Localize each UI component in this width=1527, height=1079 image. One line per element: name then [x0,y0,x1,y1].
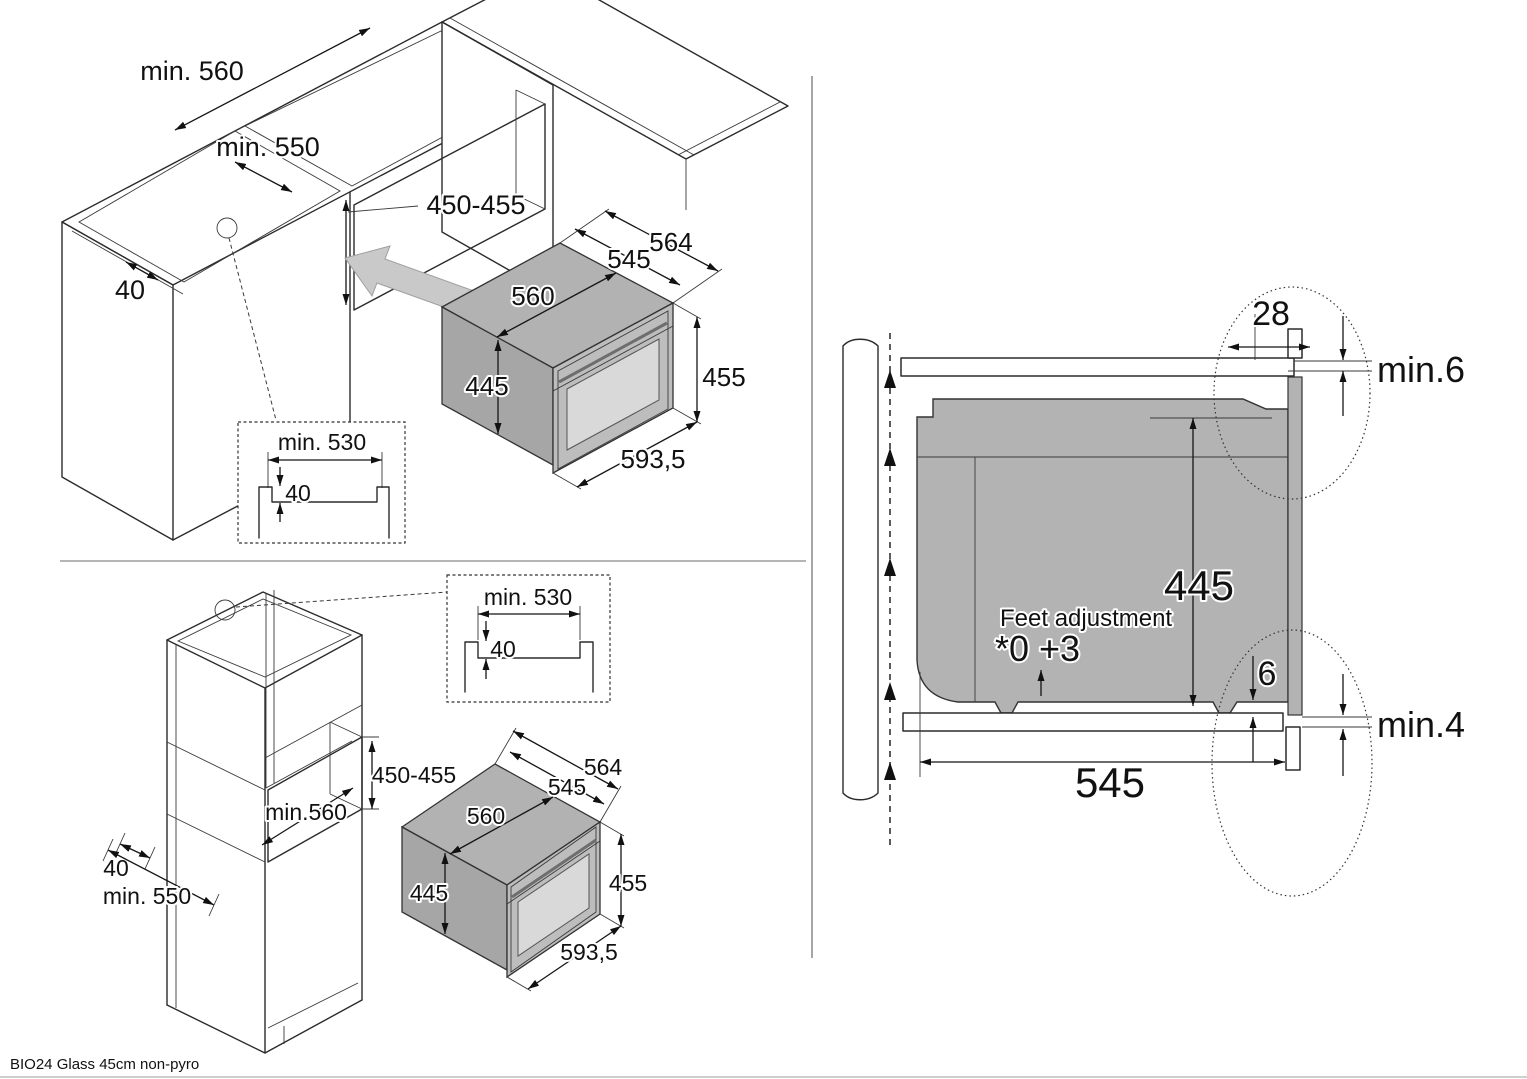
bottom-clearance-label: min.4 [1377,704,1465,745]
oven-body-section [917,399,1288,713]
inset-min-width-label: min. 530 [278,429,366,455]
detail-leader-line [229,238,276,420]
inset-min-width-label: min. 530 [484,584,572,610]
bottom-shelf-lip [1286,727,1300,770]
oven-body-depth-label: 560 [467,803,505,829]
oven-front-width-label: 593,5 [620,444,685,474]
oven-overall-width-label: 564 [584,754,623,780]
support-depth-label: 545 [1075,759,1145,806]
built-in-oven-installation-view: min. 560 min. 550 450-455 40 564 [62,0,788,543]
oven-body-height-label: 445 [410,880,448,906]
oven-body-height-label: 445 [465,371,508,401]
rail-detail-inset: min. 530 40 [447,575,610,702]
side-section-view: 28 min.6 445 Feet adjustment *0 +3 6 min… [843,287,1465,896]
top-clearance-label: min.6 [1377,349,1465,390]
inset-recess-depth-label: 40 [490,636,516,662]
niche-min-width-label: min.560 [265,799,347,825]
oven-body-width-label: 545 [548,774,586,800]
inset-recess-depth-label: 40 [285,480,311,506]
airflow-arrow-icon [884,762,896,780]
model-label: BIO24 Glass 45cm non-pyro [10,1056,199,1073]
feet-adjustment-range-label: *0 +3 [995,628,1080,669]
installation-diagram: min. 560 min. 550 450-455 40 564 [0,0,1527,1079]
front-overhang-label: 28 [1252,295,1290,333]
airflow-arrow-icon [884,448,896,466]
wall-panel [843,339,878,800]
fascia-drop-label: 6 [1258,655,1277,693]
tall-unit-installation-view: 450-455 min.560 40 min. 550 564 545 [103,575,647,1053]
oven-isometric [442,243,673,473]
fascia-top-tab [1288,329,1302,358]
airflow-arrow-icon [884,370,896,388]
rail-detail-inset: min. 530 40 [238,422,405,543]
oven-overall-width-label: 564 [649,227,692,257]
oven-front-width-label: 593,5 [560,939,618,965]
bottom-shelf [903,713,1283,731]
oven-overall-height-label: 455 [609,870,647,896]
oven-body-width-label: 545 [607,244,650,274]
niche-min-depth-label: min. 550 [216,132,320,162]
tall-cabinet-top-face [167,592,362,688]
airflow-arrow-icon [884,682,896,700]
airflow-arrow-icon [884,558,896,576]
top-shelf [901,358,1294,376]
oven-height-label: 445 [1164,562,1234,609]
cabinet-min-depth-label: min. 550 [103,883,191,909]
oven-body-depth-label: 560 [511,281,554,311]
niche-height-label: 450-455 [426,190,525,220]
oven-fascia [1288,377,1302,715]
niche-height-label: 450-455 [372,762,456,788]
niche-min-width-label: min. 560 [140,56,244,86]
plinth [268,983,358,1044]
oven-overall-height-label: 455 [702,362,745,392]
rail-offset-label: 40 [115,275,145,305]
diagram-canvas: min. 560 min. 550 450-455 40 564 [0,0,1527,1079]
